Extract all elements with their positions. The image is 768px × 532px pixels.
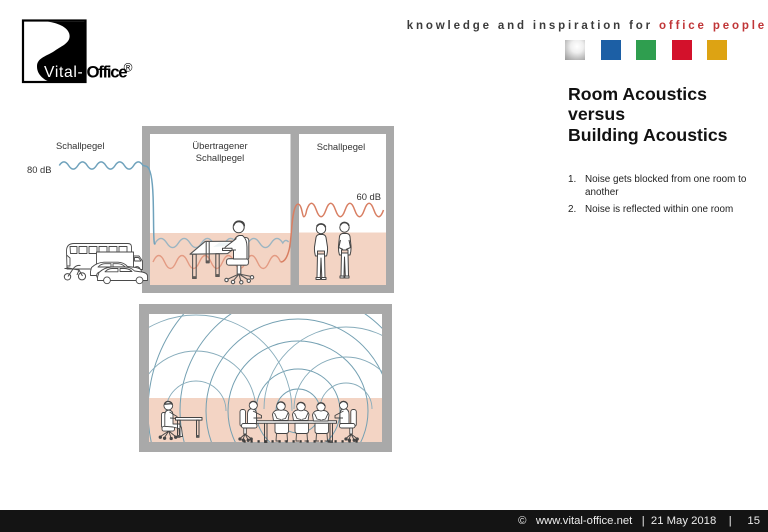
- svg-text:Schallpegel: Schallpegel: [196, 152, 244, 163]
- svg-text:Schallpegel: Schallpegel: [56, 140, 104, 151]
- svg-text:Schallpegel: Schallpegel: [317, 141, 365, 152]
- svg-text:Übertragener: Übertragener: [192, 140, 247, 151]
- svg-text:80 dB: 80 dB: [27, 164, 52, 175]
- svg-text:60 dB: 60 dB: [357, 191, 382, 202]
